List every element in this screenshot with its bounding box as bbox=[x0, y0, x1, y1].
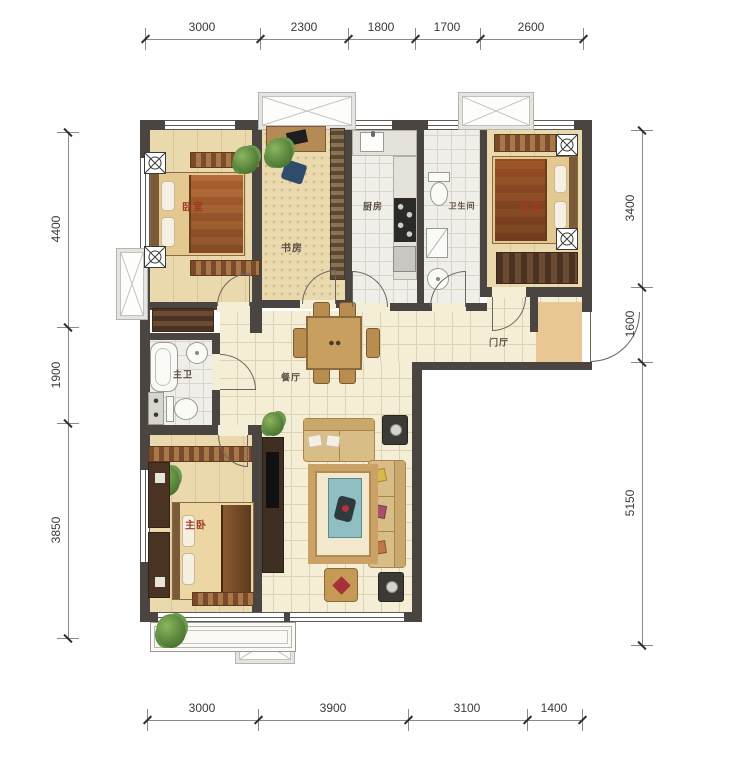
wall-pillar bbox=[250, 302, 262, 333]
dining-table bbox=[306, 316, 362, 370]
fan-coil-icon bbox=[556, 228, 578, 250]
dim-tick bbox=[582, 709, 583, 731]
wall-ne-bottom-b bbox=[526, 287, 592, 297]
stove bbox=[394, 198, 416, 242]
fan-coil-glyph bbox=[557, 135, 577, 155]
washing-machine bbox=[426, 228, 448, 258]
dim-tick bbox=[147, 709, 148, 731]
lamp bbox=[386, 581, 398, 593]
wall-mbed-top-a bbox=[140, 425, 218, 435]
dining-chair bbox=[293, 328, 307, 358]
dim-label: 2600 bbox=[518, 20, 545, 34]
dim-tick bbox=[408, 709, 409, 731]
drain bbox=[195, 351, 199, 355]
window-kitchen-top bbox=[356, 120, 392, 130]
wardrobe-knob bbox=[155, 577, 165, 587]
room-label-bedroom-nw: 卧室 bbox=[182, 199, 204, 214]
wall-mbed-top-b bbox=[248, 425, 262, 435]
dim-label: 1400 bbox=[541, 701, 568, 715]
dim-tick bbox=[57, 327, 79, 328]
side-table bbox=[382, 415, 408, 445]
dining-chair bbox=[339, 368, 356, 384]
rug-runner bbox=[192, 592, 254, 606]
wall-study-kitchen bbox=[345, 120, 352, 311]
room-label-foyer: 门厅 bbox=[489, 336, 509, 349]
window-bath-top bbox=[428, 120, 462, 130]
living-plant bbox=[262, 412, 284, 436]
dim-label: 2300 bbox=[291, 20, 318, 34]
mbath-counter bbox=[148, 392, 164, 425]
dim-tick bbox=[631, 130, 653, 131]
wardrobe-master bbox=[148, 462, 170, 528]
dim-tick bbox=[631, 645, 653, 646]
dim-line-right bbox=[642, 130, 643, 645]
faucet bbox=[371, 131, 375, 137]
mbath-toilet-tank bbox=[166, 396, 174, 422]
wall-kitchen-bath bbox=[417, 120, 424, 311]
dim-label: 3400 bbox=[623, 195, 637, 222]
entry-nook-floor bbox=[536, 302, 582, 362]
dim-tick bbox=[57, 423, 79, 424]
ac-platform-top-right bbox=[458, 92, 534, 130]
dim-line-top bbox=[145, 39, 583, 40]
bed-pillow bbox=[554, 201, 567, 229]
dim-label: 1600 bbox=[623, 311, 637, 338]
wall-mbath-top bbox=[140, 333, 220, 340]
wardrobe-knob bbox=[155, 473, 165, 483]
ac-platform-top-left bbox=[258, 92, 356, 130]
dim-label: 3850 bbox=[49, 517, 63, 544]
study-plant bbox=[265, 138, 293, 168]
fan-coil-glyph bbox=[145, 153, 165, 173]
stool-flower bbox=[332, 576, 350, 594]
wall-right-lower bbox=[412, 362, 422, 622]
wall-right-upper bbox=[582, 120, 592, 312]
mbath-sink bbox=[186, 342, 208, 364]
dim-label: 1900 bbox=[49, 362, 63, 389]
closet-bedroom-nw bbox=[152, 308, 214, 332]
toilet-tank bbox=[428, 172, 450, 182]
dim-label: 1700 bbox=[434, 20, 461, 34]
wall-foyer-stub bbox=[530, 297, 538, 332]
ac-platform-inner bbox=[262, 96, 352, 126]
room-label-study: 书房 bbox=[281, 240, 303, 255]
dim-tick bbox=[258, 709, 259, 731]
dim-tick bbox=[348, 28, 349, 50]
dim-label: 4400 bbox=[49, 216, 63, 243]
bed-pillow bbox=[182, 553, 195, 585]
wall-ne-bottom-a bbox=[487, 287, 492, 297]
wall-bath-bottom-b bbox=[466, 303, 487, 311]
dim-tick bbox=[415, 28, 416, 50]
bed-blanket bbox=[221, 505, 251, 597]
wardrobe-bedroom-ne bbox=[496, 252, 578, 284]
dim-tick bbox=[57, 132, 79, 133]
sofa-backrest bbox=[304, 419, 374, 431]
dining-chair bbox=[313, 368, 330, 384]
dim-label: 3900 bbox=[320, 701, 347, 715]
ac-platform-inner bbox=[120, 252, 144, 316]
x-mark-icon bbox=[121, 253, 143, 315]
window-living-bottom bbox=[290, 612, 404, 622]
x-mark-icon bbox=[263, 97, 351, 125]
ac-platform-inner bbox=[462, 96, 530, 126]
fan-coil-icon bbox=[144, 152, 166, 174]
toilet-bowl bbox=[430, 182, 448, 206]
wall-foyer-bottom bbox=[412, 362, 592, 370]
dim-tick bbox=[527, 709, 528, 731]
dim-tick bbox=[260, 28, 261, 50]
bed-blanket bbox=[189, 175, 243, 253]
sofa-pillow bbox=[307, 434, 323, 448]
dim-line-bottom bbox=[147, 720, 582, 721]
drain bbox=[436, 277, 440, 281]
mbath-toilet-bowl bbox=[174, 398, 198, 420]
bed-pillow bbox=[161, 181, 175, 211]
floor-stool bbox=[324, 568, 358, 602]
bookshelf bbox=[330, 128, 345, 280]
room-label-bathroom: 卫生间 bbox=[449, 201, 476, 212]
dim-tick bbox=[57, 638, 79, 639]
fridge bbox=[393, 246, 416, 272]
side-table bbox=[378, 572, 404, 602]
room-label-bedroom-ne: 卧室 bbox=[519, 199, 541, 214]
fan-coil-icon bbox=[556, 134, 578, 156]
bed-pillow bbox=[161, 217, 175, 247]
bed-pillow bbox=[554, 165, 567, 193]
bedroom-nw-plant bbox=[233, 146, 259, 174]
wall-study-bottom-a bbox=[262, 300, 300, 308]
balcony-plant bbox=[156, 614, 186, 648]
room-label-dining: 餐厅 bbox=[281, 371, 301, 384]
fan-coil-glyph bbox=[557, 229, 577, 249]
sofa-pillow bbox=[325, 434, 341, 448]
dim-tick bbox=[631, 287, 653, 288]
door-patch bbox=[212, 354, 220, 390]
kitchen-sink bbox=[360, 132, 384, 152]
dining-chair bbox=[366, 328, 380, 358]
tub-inner bbox=[155, 348, 171, 386]
dim-tick bbox=[583, 28, 584, 50]
lamp bbox=[390, 424, 402, 436]
x-mark-icon bbox=[463, 97, 529, 125]
coffee-table bbox=[328, 478, 362, 538]
fan-coil-glyph bbox=[145, 247, 165, 267]
sofa-top bbox=[303, 418, 375, 462]
room-label-master-bath: 主卫 bbox=[173, 368, 193, 381]
dim-line-left bbox=[68, 132, 69, 638]
bedroom-nw-bed bbox=[150, 172, 245, 256]
table-flower bbox=[342, 505, 349, 512]
bed-headboard bbox=[151, 173, 159, 255]
fan-coil-icon bbox=[144, 246, 166, 268]
dim-label: 1800 bbox=[368, 20, 395, 34]
wall-mbath-right-a bbox=[212, 340, 220, 354]
dim-tick bbox=[480, 28, 481, 50]
dim-tick bbox=[631, 362, 653, 363]
washer-glyph bbox=[427, 229, 447, 257]
dim-tick bbox=[145, 28, 146, 50]
window-bedroom-nw-top bbox=[165, 120, 235, 130]
dim-label: 3000 bbox=[189, 701, 216, 715]
wardrobe-master bbox=[148, 532, 170, 598]
floor-plan-canvas: 卧室 书房 厨房 卫生间 卧室 主卫 餐厅 门厅 主卧 3000 2300 18… bbox=[0, 0, 749, 765]
bed-headboard bbox=[173, 503, 180, 599]
wall-kitchen-bottom bbox=[390, 303, 424, 311]
room-label-kitchen: 厨房 bbox=[363, 200, 383, 213]
dim-label: 5150 bbox=[623, 490, 637, 517]
dim-label: 3100 bbox=[454, 701, 481, 715]
sofa-backrest bbox=[394, 461, 405, 567]
dim-label: 3000 bbox=[189, 20, 216, 34]
wall-bath-ne bbox=[480, 120, 487, 297]
tv bbox=[266, 452, 279, 508]
wall-mbath-right-b bbox=[212, 390, 220, 425]
room-label-master-bedroom: 主卧 bbox=[185, 517, 207, 532]
